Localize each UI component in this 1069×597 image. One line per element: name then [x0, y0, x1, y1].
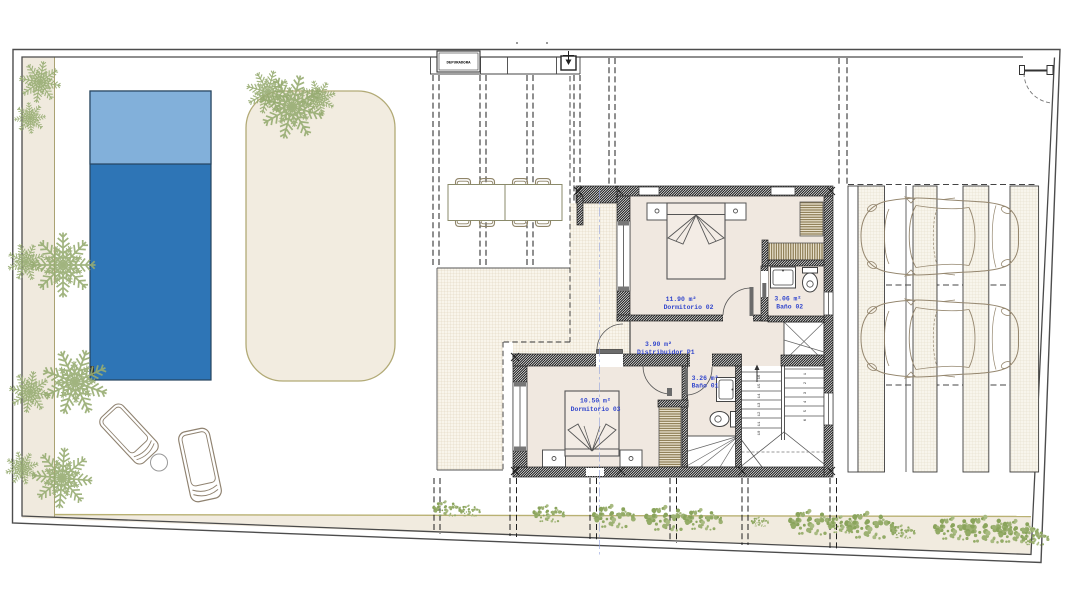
- svg-text:10.50 m²: 10.50 m²: [580, 398, 611, 405]
- svg-text:10: 10: [758, 430, 762, 435]
- svg-text:14: 14: [758, 393, 762, 398]
- svg-text:13: 13: [758, 402, 762, 407]
- svg-text:Dormitorio 02: Dormitorio 02: [664, 304, 714, 311]
- svg-text:3.90 m²: 3.90 m²: [645, 341, 672, 348]
- svg-text:12: 12: [758, 411, 762, 416]
- svg-text:Dormitorio 03: Dormitorio 03: [571, 406, 621, 413]
- svg-text:16: 16: [758, 374, 762, 379]
- svg-text:Distribuidor P1: Distribuidor P1: [637, 349, 695, 356]
- svg-text:11.90 m²: 11.90 m²: [666, 296, 697, 303]
- svg-text:15: 15: [758, 383, 762, 388]
- svg-text:Baño 02: Baño 02: [776, 304, 803, 311]
- svg-text:DEPURADORA: DEPURADORA: [446, 62, 471, 66]
- svg-text:3.26 m²: 3.26 m²: [692, 375, 719, 382]
- svg-text:3.06 m²: 3.06 m²: [774, 296, 801, 303]
- svg-text:11: 11: [758, 421, 762, 426]
- svg-text:Baño 01: Baño 01: [692, 382, 719, 389]
